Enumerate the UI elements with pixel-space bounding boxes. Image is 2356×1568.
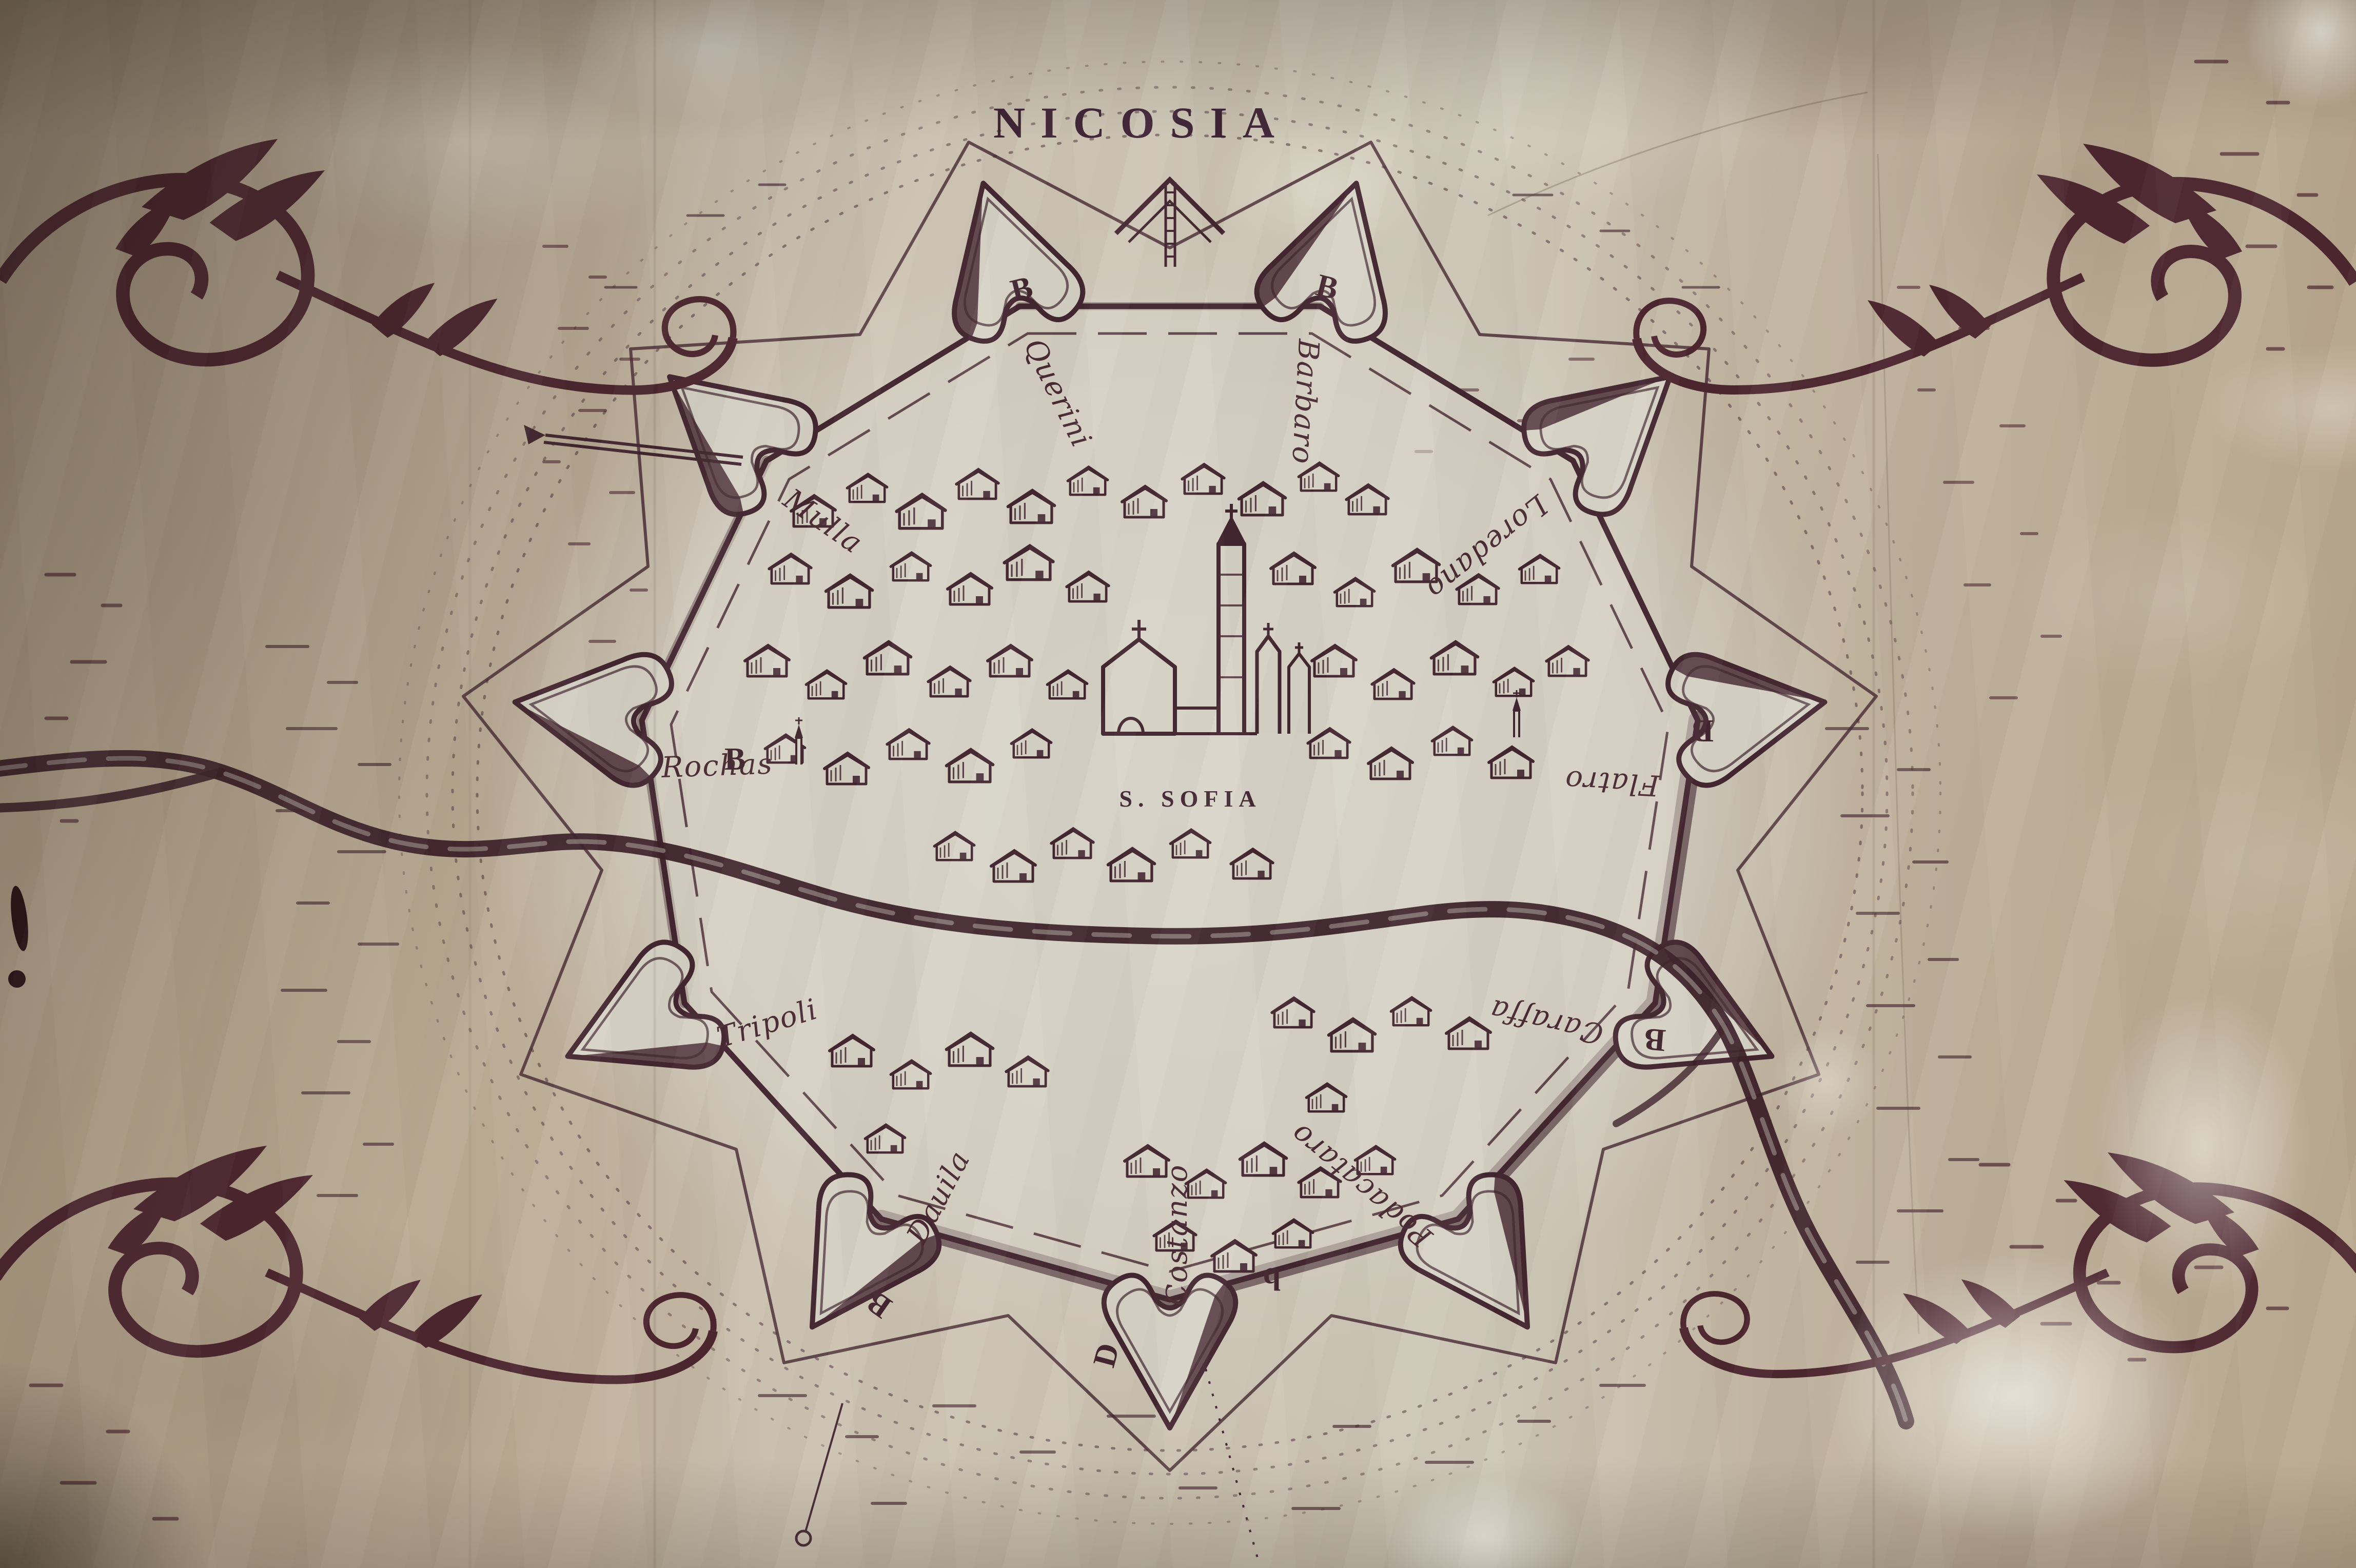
decorative-flourish-top-right <box>1636 144 2355 390</box>
bastion-letter: b <box>1263 1261 1281 1296</box>
bastion-label-rochas: Rochas <box>660 747 774 785</box>
decorative-flourish-top-left <box>1 139 734 390</box>
photo-of-nicosia-map-banner: { "map": { "title": "NICOSIA", "cathedra… <box>0 0 2356 1568</box>
bastion-label-flatro: Flatro <box>1563 763 1660 802</box>
ravelin-outwork <box>1116 180 1224 267</box>
cathedral-label: S. SOFIA <box>1119 786 1261 812</box>
nicosia-map-print: Querini Barbaro Loredano Flatro Caraffa … <box>0 0 2356 1568</box>
map-title: NICOSIA <box>993 98 1290 147</box>
bastion-letter: B <box>1643 1021 1667 1057</box>
decorative-flourish-bottom-left <box>0 1146 714 1380</box>
bastion-label-costanzo: Costanzo <box>1161 1164 1194 1306</box>
bastion-label-barbaro: Barbaro <box>1285 338 1325 465</box>
bastion-letter: B <box>1693 713 1714 748</box>
left-edge-object <box>8 885 31 988</box>
bastion-letter: B <box>724 742 745 777</box>
